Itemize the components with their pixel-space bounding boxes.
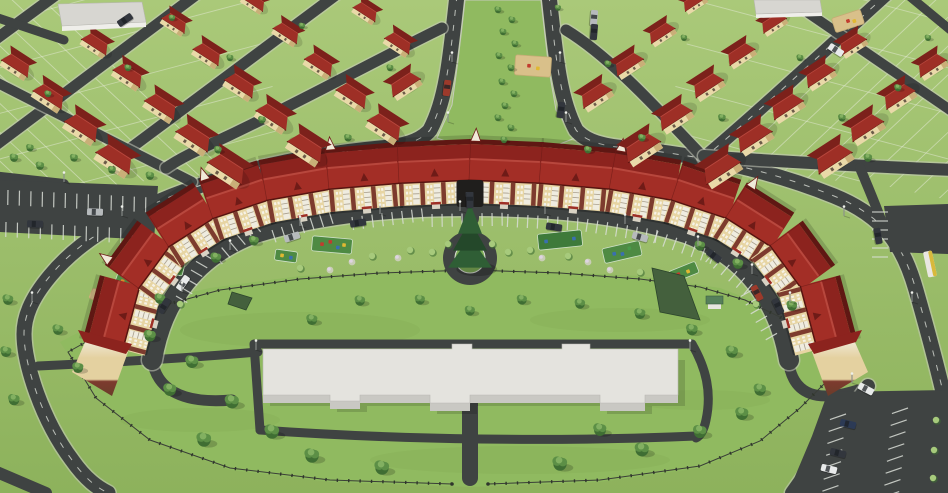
play-equipment <box>342 243 346 247</box>
lamp-head <box>851 372 854 375</box>
porch-roof <box>431 202 441 205</box>
play-equipment <box>336 246 340 250</box>
gate-post <box>486 482 490 486</box>
lamp-head <box>121 205 124 208</box>
lamp-head <box>299 215 302 218</box>
lamp-head <box>624 213 627 216</box>
flowering-bush <box>395 255 402 262</box>
lamp-head <box>789 291 792 294</box>
flowering-bush <box>539 255 546 262</box>
school-roof <box>263 344 678 403</box>
lamp-head <box>544 203 547 206</box>
flowering-bush <box>607 267 614 274</box>
car-glass <box>32 221 36 227</box>
layer-school <box>263 344 685 414</box>
lamp-head <box>697 235 700 238</box>
balcony-stack <box>524 185 531 205</box>
lamp-head <box>559 51 562 54</box>
flowering-bush <box>327 267 334 274</box>
play-equipment <box>328 240 332 244</box>
gate-post <box>450 482 454 486</box>
play-equipment <box>280 253 284 257</box>
sand-playground <box>514 55 551 77</box>
lamp-head <box>911 291 914 294</box>
play-equipment <box>289 256 293 260</box>
car-glass <box>444 84 450 89</box>
shed-roof <box>706 296 723 304</box>
lamp-head <box>843 205 846 208</box>
flat-building-roof <box>58 2 146 26</box>
lawn-shade-patch <box>370 446 670 474</box>
play-equipment <box>544 239 548 243</box>
car-glass <box>92 209 96 215</box>
road <box>254 344 260 430</box>
lamp-head <box>255 339 258 342</box>
car-glass <box>591 29 597 34</box>
lamp-head <box>459 200 462 203</box>
car-glass <box>591 15 597 20</box>
flowering-bush <box>585 259 592 266</box>
lamp-head <box>689 339 692 342</box>
car-glass <box>467 197 473 201</box>
balcony-stack <box>434 184 441 204</box>
lamp-head <box>751 263 754 266</box>
lamp-head <box>63 171 66 174</box>
car <box>27 220 44 229</box>
lamp-head <box>379 203 382 206</box>
aerial-residential-render <box>0 0 948 493</box>
flat-building-roof <box>754 0 822 14</box>
balcony-stack <box>503 184 510 204</box>
flowering-bush <box>349 259 356 266</box>
porch-roof <box>499 202 509 205</box>
lamp-head <box>229 239 232 242</box>
play-equipment <box>572 237 576 241</box>
lamp-head <box>451 51 454 54</box>
play-equipment <box>536 66 540 70</box>
lamp-head <box>565 111 568 114</box>
lamp-head <box>447 111 450 114</box>
scene-svg <box>0 0 948 493</box>
play-equipment <box>320 242 324 246</box>
playground-mat <box>311 236 352 254</box>
car <box>589 24 599 41</box>
car <box>465 192 473 209</box>
parking-lot <box>884 204 948 254</box>
play-equipment <box>527 64 531 68</box>
balcony-stack <box>413 185 420 205</box>
lamp-head <box>31 291 34 294</box>
car <box>87 208 104 217</box>
lamp-head <box>181 281 184 284</box>
